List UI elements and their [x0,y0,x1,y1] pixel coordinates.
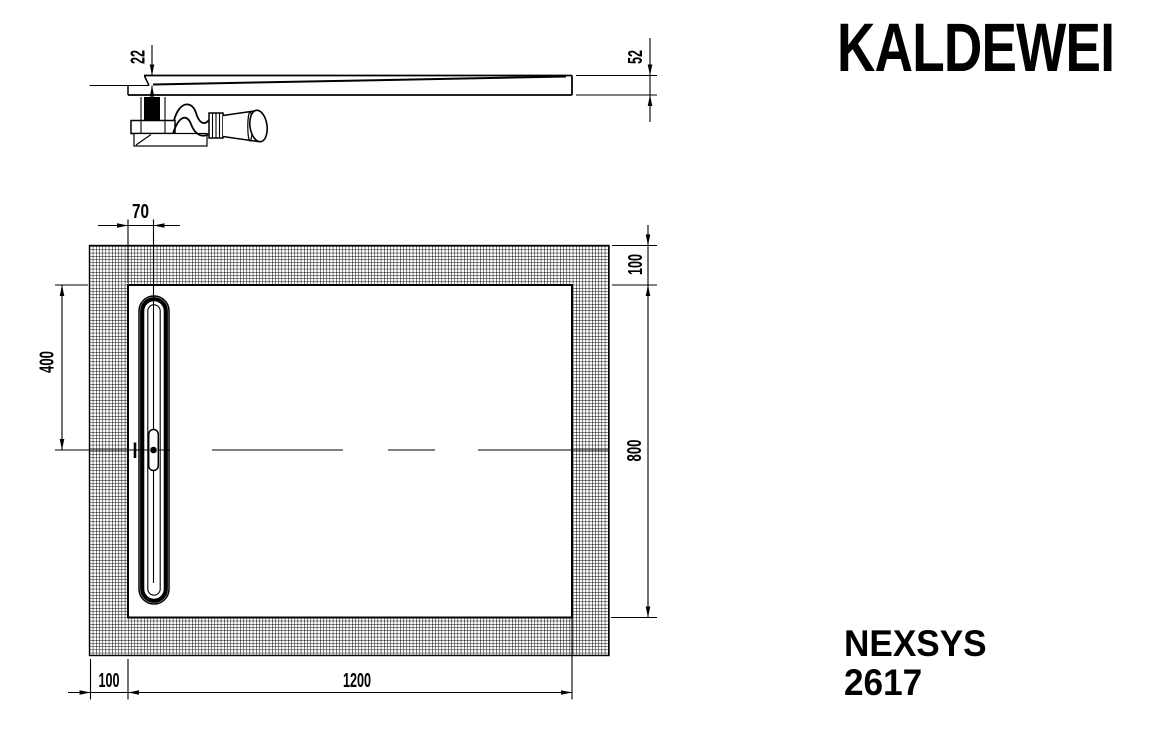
drain-trap-assembly [131,97,269,146]
drain-pipe [144,97,160,121]
tray-profile [90,76,573,96]
dim-label-100-top: 100 [625,254,647,275]
drain-center-point [150,447,157,454]
dimension-surround-100-left: 100 [68,659,572,700]
product-series: NEXSYS [844,624,987,663]
dim-label-1200: 1200 [343,670,371,692]
side-elevation-view: 22 52 [90,38,658,146]
product-model: 2617 [844,663,987,702]
dimension-height-52: 52 [576,38,657,122]
dim-label-400: 400 [37,351,59,373]
trap-body [134,134,207,147]
dim-label-70: 70 [132,201,149,223]
dimension-width-800: 800 [611,440,657,618]
dimension-depth-22: 22 [128,45,155,98]
drawing-sheet: 22 52 [0,0,1164,731]
compression-nut [209,113,223,138]
dim-label-52: 52 [625,50,647,64]
dim-label-22: 22 [128,50,150,64]
dim-label-100-bottom: 100 [99,670,120,692]
drain-flange [131,121,175,134]
dimension-surround-100-top: 100 [612,225,657,618]
dimension-drain-position-400: 400 [37,285,89,450]
dim-label-800: 800 [624,440,646,462]
tray-surface [128,285,572,618]
plan-view: 70 400 100 800 [37,201,658,700]
brand-logo: KALDEWEI [837,8,1114,87]
technical-drawing: 22 52 [0,0,1164,731]
product-code: NEXSYS 2617 [844,624,987,702]
outlet-pipe [223,109,269,143]
